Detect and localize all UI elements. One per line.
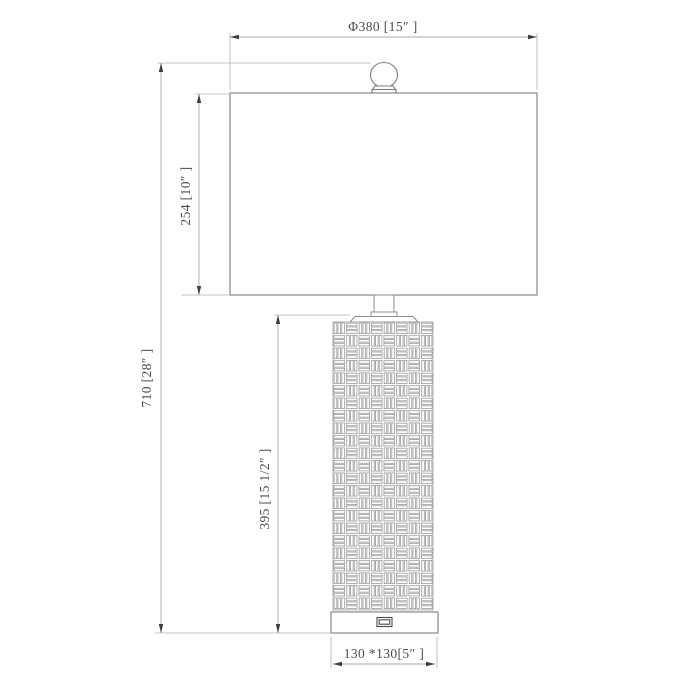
neck-collar [371,312,397,317]
technical-drawing-canvas: Φ380 [15″ ] 710 [28″ ] 254 [10″ ] 39 [0,0,700,700]
lamp-shade [230,93,537,295]
finial-ball [371,63,398,88]
basket-weave-body [333,322,433,610]
dim-overall-height-label: 710 [28″ ] [139,348,154,407]
dim-base-size-label: 130 *130[5″ ] [344,646,425,661]
arrow-left [230,35,239,39]
arrow-down [159,624,163,633]
arrow-left [333,662,342,666]
arrow-down [197,286,201,295]
arrow-right [528,35,537,39]
lamp-dimension-drawing: Φ380 [15″ ] 710 [28″ ] 254 [10″ ] 39 [0,0,700,700]
arrow-up [197,94,201,103]
arrow-up [276,315,280,324]
dim-body-height-label: 395 [15 1/2″ ] [257,448,272,529]
dimension-shade-height: 254 [10″ ] [178,94,229,295]
arrow-up [159,63,163,72]
dim-shade-height-label: 254 [10″ ] [178,166,193,225]
neck [374,295,394,313]
usb-port-inner [379,620,390,624]
arrow-right [426,662,435,666]
dim-shade-diameter-label: Φ380 [15″ ] [348,19,417,34]
arrow-down [276,624,280,633]
body-cap [350,317,418,323]
dimension-base-size: 130 *130[5″ ] [331,637,437,668]
lamp-figure [230,63,537,634]
